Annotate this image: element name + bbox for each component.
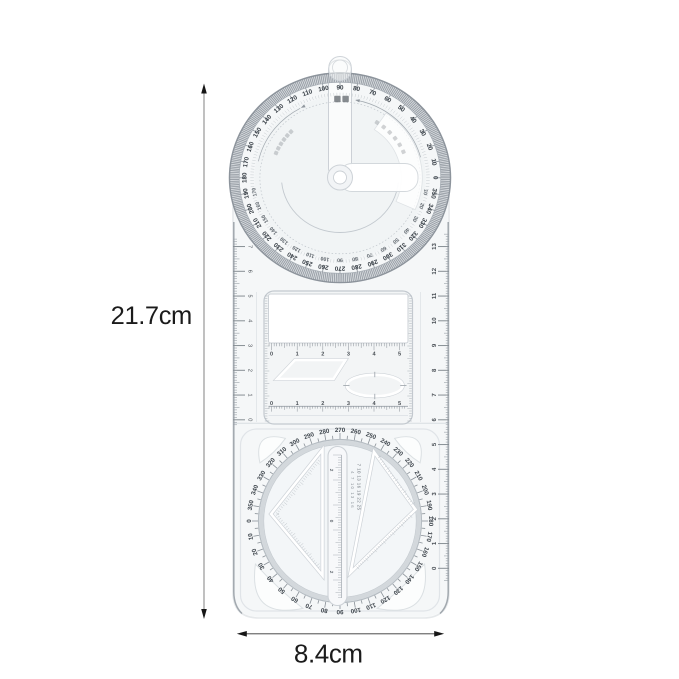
svg-text:0: 0 [270, 351, 273, 357]
svg-text:4 7 10 13 16: 4 7 10 13 16 [350, 471, 355, 509]
svg-text:12: 12 [431, 267, 438, 274]
svg-text:90: 90 [336, 608, 343, 615]
svg-text:7: 7 [247, 245, 253, 248]
svg-text:2: 2 [247, 369, 253, 372]
svg-text:8.4cm: 8.4cm [294, 639, 363, 669]
svg-text:2: 2 [321, 351, 324, 357]
svg-text:4: 4 [247, 319, 253, 322]
svg-text:90: 90 [337, 257, 343, 263]
svg-text:1: 1 [247, 394, 253, 397]
svg-text:13: 13 [431, 243, 438, 250]
svg-text:7 10 13 16 19 22 25: 7 10 13 16 19 22 25 [356, 464, 361, 511]
svg-text:180: 180 [427, 516, 434, 527]
svg-text:270: 270 [335, 427, 346, 434]
svg-text:270: 270 [334, 264, 345, 271]
svg-text:6: 6 [247, 270, 253, 273]
svg-text:1: 1 [296, 351, 299, 357]
svg-text:0: 0 [246, 519, 253, 523]
svg-text:11: 11 [431, 292, 438, 299]
svg-text:90: 90 [336, 84, 344, 91]
svg-text:80: 80 [352, 255, 359, 262]
svg-text:5: 5 [398, 351, 401, 357]
svg-text:10: 10 [431, 317, 438, 324]
svg-text:3: 3 [247, 344, 253, 347]
svg-text:21.7cm: 21.7cm [111, 302, 192, 330]
svg-text:0: 0 [431, 176, 438, 180]
svg-text:3: 3 [347, 351, 350, 357]
svg-text:0: 0 [247, 418, 253, 421]
svg-text:180: 180 [242, 172, 249, 183]
svg-text:5: 5 [247, 295, 253, 298]
svg-text:2: 2 [329, 469, 334, 472]
svg-text:10: 10 [421, 189, 428, 196]
svg-text:2: 2 [329, 571, 334, 574]
svg-text:0: 0 [329, 520, 334, 523]
